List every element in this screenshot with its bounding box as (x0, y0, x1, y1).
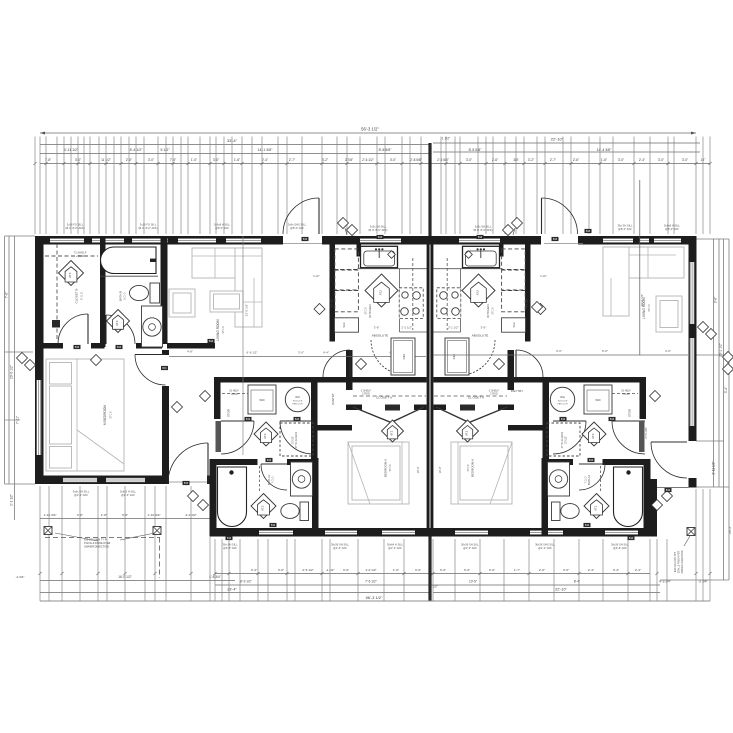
svg-text:3'-6": 3'-6" (374, 325, 380, 329)
svg-text:PAN TRY: PAN TRY (511, 389, 523, 393)
svg-text:22'-10": 22'-10" (551, 137, 564, 142)
svg-text:STC.6: STC.6 (221, 326, 225, 334)
svg-text:@8'-0" AFF: @8'-0" AFF (665, 227, 679, 231)
svg-text:AT.2: AT.2 (476, 290, 480, 296)
svg-text:T CLO: T CLO (272, 476, 275, 483)
svg-text:6'-6": 6'-6" (602, 349, 608, 353)
svg-text:7'-8": 7'-8" (5, 291, 9, 298)
svg-text:3'-8": 3'-8" (714, 296, 718, 303)
svg-text:3'-0": 3'-0" (563, 568, 569, 572)
svg-text:32"x22": 32"x22" (566, 436, 568, 444)
svg-text:4'-8": 4'-8" (187, 350, 193, 354)
svg-text:WH: WH (560, 395, 565, 399)
svg-text:PAN & DR: PAN & DR (292, 403, 303, 406)
svg-text:36x36 SH SILL: 36x36 SH SILL (611, 543, 630, 547)
svg-text:8'-5 5/8": 8'-5 5/8" (469, 148, 483, 152)
svg-text:6 1/2": 6 1/2" (540, 275, 547, 278)
svg-text:3'-0": 3'-0" (466, 158, 472, 162)
svg-text:AT.2: AT.2 (465, 430, 469, 436)
svg-text:3'-0": 3'-0" (618, 158, 624, 162)
svg-text:T CLO: T CLO (585, 476, 588, 483)
svg-text:AT.0: AT.0 (115, 320, 119, 326)
svg-text:B16: B16 (209, 340, 214, 343)
svg-text:3x6x SH SILL: 3x6x SH SILL (73, 490, 90, 494)
svg-text:36x36 SHS SILL: 36x36 SHS SILL (535, 543, 555, 547)
svg-text:2'-4": 2'-4" (588, 568, 594, 572)
svg-text:2'-7": 2'-7" (550, 158, 556, 162)
svg-text:5'-4 1/2": 5'-4 1/2" (130, 148, 144, 152)
svg-text:(B.O. 8'-0" AFF): (B.O. 8'-0" AFF) (66, 226, 85, 230)
svg-text:26'-3": 26'-3" (728, 526, 732, 534)
svg-text:W/D: W/D (259, 398, 264, 402)
svg-text:B16: B16 (378, 236, 383, 239)
svg-text:4'-3 3/4": 4'-3 3/4" (659, 580, 671, 584)
svg-text:BEDROOM A: BEDROOM A (471, 459, 475, 477)
svg-text:2'-1 1/2": 2'-1 1/2" (448, 325, 459, 329)
svg-text:B16: B16 (267, 459, 272, 462)
svg-text:-2 3/4": -2 3/4" (16, 575, 25, 579)
svg-text:3'-0": 3'-0" (343, 568, 349, 572)
svg-text:AT.2: AT.2 (261, 505, 265, 511)
svg-text:2'-5 1/2": 2'-5 1/2" (302, 568, 313, 572)
svg-text:B16: B16 (227, 537, 232, 540)
svg-text:20'-0 1/2": 20'-0 1/2" (9, 364, 13, 379)
svg-text:@6'-8" AFF: @6'-8" AFF (613, 546, 627, 550)
svg-text:VAC: VAC (512, 322, 516, 327)
svg-text:3x6x3 H SILL: 3x6x3 H SILL (120, 490, 137, 494)
svg-text:2'-6": 2'-6" (573, 158, 579, 162)
svg-text:@2'-3" AFF: @2'-3" AFF (121, 493, 135, 497)
svg-text:3'-0": 3'-0" (298, 351, 304, 355)
svg-text:4'-11 1/2": 4'-11 1/2" (64, 148, 79, 152)
svg-text:KITCHEN: KITCHEN (368, 304, 372, 317)
svg-text:2 ROD: 2 ROD (490, 393, 498, 396)
svg-text:ICE MKG PLATFORM: ICE MKG PLATFORM (642, 422, 645, 445)
svg-text:3'-0": 3'-0" (148, 158, 154, 162)
svg-text:8 CLO: 8 CLO (124, 292, 127, 299)
svg-text:KITCHEN: KITCHEN (486, 304, 490, 317)
svg-text:@8'-0" AFF: @8'-0" AFF (215, 226, 229, 230)
svg-text:3x16 FG SILL: 3x16 FG SILL (140, 223, 157, 227)
svg-text:2'-4": 2'-4" (635, 568, 641, 572)
svg-text:3x16 FG SILL: 3x16 FG SILL (67, 223, 84, 227)
svg-text:1'-0": 1'-0" (191, 158, 197, 162)
svg-text:OWNER DIRECTION: OWNER DIRECTION (681, 550, 684, 573)
svg-text:AT.0: AT.0 (263, 433, 267, 439)
svg-text:CL OSE T A: CL OSE T A (468, 395, 484, 399)
svg-text:B16: B16 (478, 236, 483, 239)
svg-text:B16: B16 (561, 418, 566, 421)
svg-text:2'-4": 2'-4" (262, 158, 268, 162)
svg-text:STC.6: STC.6 (647, 304, 651, 312)
svg-text:PAN & DR: PAN & DR (557, 403, 568, 406)
svg-text:REF: REF (452, 353, 456, 359)
svg-text:32"x22": 32"x22" (293, 436, 295, 444)
svg-text:3'-0": 3'-0" (658, 158, 664, 162)
svg-text:B16: B16 (589, 459, 594, 462)
svg-text:2'-11 1/2": 2'-11 1/2" (712, 461, 716, 474)
svg-text:5 1/2": 5 1/2" (160, 148, 170, 152)
svg-text:4'-6": 4'-6" (665, 349, 671, 353)
svg-text:3'-0": 3'-0" (440, 568, 446, 572)
svg-text:B16: B16 (610, 418, 615, 421)
svg-text:B16: B16 (271, 524, 276, 527)
svg-text:B16: B16 (75, 346, 80, 349)
svg-text:B16: B16 (629, 537, 634, 540)
svg-text:CLOSET B: CLOSET B (75, 289, 79, 304)
svg-text:36x36 SH SILL: 36x36 SH SILL (461, 543, 480, 547)
svg-text:36x36 SH SILL: 36x36 SH SILL (331, 543, 350, 547)
svg-text:ABSOLUTE: ABSOLUTE (372, 334, 389, 338)
svg-text:+ ROD: + ROD (76, 254, 85, 258)
svg-text:B16: B16 (586, 230, 591, 233)
svg-text:6'-6 1/2": 6'-6 1/2" (247, 351, 258, 355)
svg-text:3x3x SH SILL: 3x3x SH SILL (370, 225, 387, 229)
svg-text:22'-10": 22'-10" (555, 588, 567, 592)
svg-text:2'-1 1/2": 2'-1 1/2" (9, 494, 13, 506)
svg-text:10'-0": 10'-0" (438, 467, 442, 474)
svg-text:@8'-0" AFF: @8'-0" AFF (618, 227, 632, 231)
svg-text:1'-0 1/2": 1'-0 1/2" (365, 568, 376, 572)
svg-text:6 1/2": 6 1/2" (313, 275, 320, 278)
svg-text:1 ROD: 1 ROD (622, 393, 630, 396)
svg-text:@2'-3" AFF: @2'-3" AFF (333, 546, 347, 550)
svg-text:B16: B16 (666, 489, 671, 492)
svg-text:20'-0 1/2": 20'-0 1/2" (640, 294, 644, 307)
svg-text:23'-0 1/2": 23'-0 1/2" (245, 304, 249, 317)
svg-text:B16: B16 (585, 524, 590, 527)
svg-text:7'-11": 7'-11" (16, 415, 20, 424)
svg-text:B16: B16 (553, 238, 558, 241)
svg-text:BEDROOM A: BEDROOM A (384, 459, 388, 477)
svg-text:INCLUDE: INCLUDE (293, 401, 303, 403)
svg-text:WH: WH (295, 395, 300, 399)
svg-text:3x6x SHS SILL: 3x6x SHS SILL (288, 223, 307, 227)
svg-text:3'-4": 3'-4" (724, 386, 728, 393)
svg-text:AT.0: AT.0 (68, 272, 72, 278)
svg-text:STC.6: STC.6 (364, 307, 367, 315)
svg-text:(B.O. 8'-0" AFF): (B.O. 8'-0" AFF) (474, 228, 493, 232)
svg-text:AT.2: AT.2 (390, 430, 394, 436)
svg-text:2'-8 5/8": 2'-8 5/8" (410, 158, 422, 162)
svg-text:INCLUDE: INCLUDE (558, 401, 568, 403)
svg-text:3'-0": 3'-0" (489, 568, 495, 572)
svg-text:14'-4 3/8": 14'-4 3/8" (597, 148, 613, 152)
svg-text:OWNER DIRECTION: OWNER DIRECTION (84, 545, 109, 549)
svg-text:14'-1 3/8": 14'-1 3/8" (258, 148, 274, 152)
svg-text:1'-0": 1'-0" (393, 568, 399, 572)
svg-text:4'-1 1/2": 4'-1 1/2" (330, 298, 334, 308)
svg-text:3x3x SH SILL: 3x3x SH SILL (475, 225, 492, 229)
svg-text:@2'-3" AFF: @2'-3" AFF (388, 546, 402, 550)
svg-text:3'-0": 3'-0" (464, 568, 470, 572)
svg-text:10'-5": 10'-5" (469, 580, 477, 584)
svg-text:@2'-3" AFF: @2'-3" AFF (74, 493, 88, 497)
svg-text:4'-4": 4'-4" (323, 351, 329, 355)
svg-text:AT.0: AT.0 (591, 433, 595, 439)
svg-text:STOR: STOR (227, 409, 231, 417)
svg-text:PANTRY: PANTRY (331, 393, 335, 405)
svg-text:LIVING ROOM: LIVING ROOM (216, 319, 220, 341)
svg-text:3'-0": 3'-0" (682, 158, 688, 162)
svg-text:1 ROD: 1 ROD (230, 393, 238, 396)
svg-text:@8'-0" AFF: @8'-0" AFF (290, 226, 304, 230)
svg-text:W/D: W/D (595, 398, 600, 402)
svg-text:BATH A: BATH A (267, 475, 271, 485)
svg-text:CL OSE T A: CL OSE T A (376, 395, 392, 399)
svg-text:1'-10 3/4": 1'-10 3/4" (43, 513, 56, 517)
svg-text:36x64 H SILL: 36x64 H SILL (387, 543, 404, 547)
svg-text:3 7/8": 3 7/8" (345, 158, 353, 162)
svg-text:3'-0": 3'-0" (415, 568, 421, 572)
svg-text:2'-4": 2'-4" (639, 158, 645, 162)
svg-text:M BEDROOM: M BEDROOM (103, 405, 107, 425)
svg-text:3'-0": 3'-0" (556, 349, 562, 353)
svg-text:ATTIC ABV: ATTIC ABV (645, 427, 648, 439)
svg-text:2'-7": 2'-7" (289, 158, 295, 162)
svg-text:3'-2": 3'-2" (528, 158, 534, 162)
svg-text:2'-0": 2'-0" (539, 568, 545, 572)
svg-text:2 ROD: 2 ROD (362, 393, 370, 396)
svg-text:B16: B16 (117, 346, 122, 349)
svg-text:6x6 COLUMN TY P: 6x6 COLUMN TY P (84, 538, 107, 542)
svg-text:1'-6": 1'-6" (601, 158, 607, 162)
svg-text:3'-2": 3'-2" (322, 158, 328, 162)
svg-text:3'-0": 3'-0" (390, 158, 396, 162)
svg-text:STC.6: STC.6 (109, 411, 113, 419)
svg-text:6' CLO: 6' CLO (81, 292, 84, 300)
svg-text:BATH A: BATH A (587, 475, 591, 485)
svg-text:P EXG & FINISH P ER: P EXG & FINISH P ER (84, 541, 110, 545)
svg-text:2'-1 1/2": 2'-1 1/2" (401, 325, 412, 329)
svg-text:36x SH SILL: 36x SH SILL (222, 543, 238, 547)
svg-text:STOR: STOR (628, 409, 632, 417)
svg-text:3'-6": 3'-6" (481, 325, 487, 329)
svg-text:B16: B16 (184, 482, 189, 485)
svg-text:3x6x8 H SILL: 3x6x8 H SILL (664, 224, 681, 228)
svg-text:56'-3 1/2": 56'-3 1/2" (361, 127, 379, 132)
svg-text:2'-6 1/2": 2'-6 1/2" (362, 158, 374, 162)
svg-text:1'-8": 1'-8" (101, 513, 107, 517)
svg-text:1'-10 3/4": 1'-10 3/4" (147, 513, 160, 517)
svg-text:B16: B16 (303, 238, 308, 241)
svg-text:(B.O. 8'-0" AFF): (B.O. 8'-0" AFF) (139, 226, 158, 230)
svg-text:1'-7": 1'-7" (514, 568, 520, 572)
svg-text:B16: B16 (295, 418, 300, 421)
svg-text:56'-3 1/2": 56'-3 1/2" (366, 595, 383, 600)
svg-text:AT.2: AT.2 (379, 290, 383, 296)
svg-text:B16: B16 (162, 367, 167, 370)
svg-text:2'-6 5/8": 2'-6 5/8" (437, 158, 449, 162)
svg-text:ATTIC ACCESS: ATTIC ACCESS (295, 431, 298, 448)
svg-text:4'-1 1/2": 4'-1 1/2" (525, 298, 529, 308)
svg-text:3'-6": 3'-6" (278, 568, 284, 572)
svg-text:STC.6: STC.6 (492, 307, 495, 315)
svg-text:REF: REF (402, 353, 406, 359)
svg-text:3x6x8 H SILL: 3x6x8 H SILL (214, 223, 231, 227)
svg-text:ABSOLUTE: ABSOLUTE (472, 334, 489, 338)
svg-text:@2'-3" AFF: @2'-3" AFF (538, 546, 552, 550)
svg-text:STC.6: STC.6 (467, 464, 470, 472)
svg-text:7'-6 1/2": 7'-6 1/2" (365, 580, 377, 584)
svg-text:(B.O. 8'-0" AFF): (B.O. 8'-0" AFF) (369, 228, 388, 232)
svg-text:10'-0": 10'-0" (416, 467, 420, 474)
svg-text:8'-5 5/8": 8'-5 5/8" (379, 148, 393, 152)
svg-text:B16: B16 (246, 418, 251, 421)
svg-text:36x SH SILL: 36x SH SILL (617, 224, 633, 228)
svg-text:3'-4": 3'-4" (613, 568, 619, 572)
svg-text:BATH B: BATH B (119, 291, 123, 301)
svg-text:@2'-3" AFF: @2'-3" AFF (463, 546, 477, 550)
svg-text:ATTIC ACCESS: ATTIC ACCESS (561, 431, 564, 448)
svg-text:8'-9 1/2": 8'-9 1/2" (240, 580, 252, 584)
svg-text:3'-4": 3'-4" (251, 568, 257, 572)
svg-text:1'-6": 1'-6" (234, 158, 240, 162)
svg-text:STC.6: STC.6 (389, 464, 392, 472)
svg-text:20'-1 1/2": 20'-1 1/2" (718, 342, 722, 357)
svg-text:@6'-8" AFF: @6'-8" AFF (223, 546, 237, 550)
svg-text:AT.2: AT.2 (594, 505, 598, 511)
svg-text:VAC: VAC (342, 322, 346, 327)
